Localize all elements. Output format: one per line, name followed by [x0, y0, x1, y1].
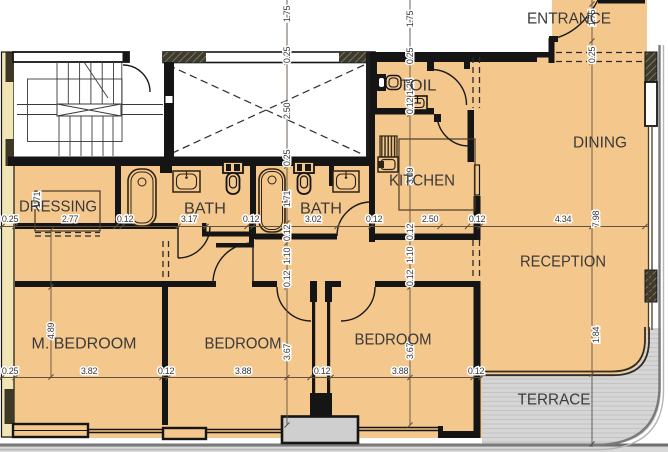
svg-text:3.88: 3.88 — [235, 366, 252, 376]
svg-text:1.10: 1.10 — [282, 248, 292, 265]
svg-text:0.25: 0.25 — [405, 48, 415, 65]
svg-text:BATH: BATH — [184, 201, 226, 218]
svg-text:1.75: 1.75 — [282, 6, 292, 23]
svg-text:TERRACE: TERRACE — [518, 392, 591, 409]
svg-text:0.12: 0.12 — [405, 224, 415, 241]
svg-text:0.25: 0.25 — [282, 47, 292, 64]
svg-text:0.12: 0.12 — [405, 270, 415, 287]
svg-text:ENTRANCE: ENTRANCE — [527, 11, 611, 28]
svg-text:0.12: 0.12 — [158, 366, 175, 376]
svg-text:4.34: 4.34 — [555, 214, 572, 224]
svg-text:0.12: 0.12 — [282, 271, 292, 288]
svg-text:TOIL: TOIL — [400, 78, 437, 95]
svg-text:0.25: 0.25 — [2, 214, 19, 224]
svg-text:1.10: 1.10 — [405, 247, 415, 264]
svg-text:BATH: BATH — [300, 201, 342, 218]
svg-text:0.12: 0.12 — [469, 214, 486, 224]
svg-text:2.50: 2.50 — [422, 214, 439, 224]
svg-text:0.12: 0.12 — [243, 214, 260, 224]
svg-text:0.12: 0.12 — [282, 225, 292, 242]
svg-text:KITCHEN: KITCHEN — [389, 173, 455, 190]
svg-text:0.12: 0.12 — [366, 214, 383, 224]
svg-text:0.12: 0.12 — [468, 366, 485, 376]
svg-text:0.12: 0.12 — [117, 214, 134, 224]
svg-text:2.77: 2.77 — [62, 214, 79, 224]
svg-text:RECEPTION: RECEPTION — [520, 254, 606, 271]
svg-text:2.50: 2.50 — [282, 103, 292, 120]
svg-text:1.75: 1.75 — [405, 11, 415, 28]
svg-text:0.12: 0.12 — [405, 98, 415, 115]
svg-text:DRESSING: DRESSING — [19, 199, 97, 216]
svg-text:BEDROOM: BEDROOM — [355, 332, 432, 349]
svg-text:3.67: 3.67 — [282, 344, 292, 361]
svg-text:3.88: 3.88 — [392, 366, 409, 376]
svg-text:3.82: 3.82 — [81, 366, 98, 376]
svg-text:0.12: 0.12 — [314, 366, 331, 376]
svg-text:0.25: 0.25 — [587, 47, 597, 64]
svg-text:1.71: 1.71 — [282, 191, 292, 208]
svg-text:0.25: 0.25 — [282, 150, 292, 167]
svg-text:7.98: 7.98 — [591, 211, 601, 228]
svg-text:DINING: DINING — [573, 135, 627, 152]
svg-text:M. BEDROOM: M. BEDROOM — [32, 336, 137, 353]
svg-text:0.25: 0.25 — [2, 366, 19, 376]
svg-text:BEDROOM: BEDROOM — [205, 336, 282, 353]
svg-text:1.84: 1.84 — [591, 327, 601, 344]
